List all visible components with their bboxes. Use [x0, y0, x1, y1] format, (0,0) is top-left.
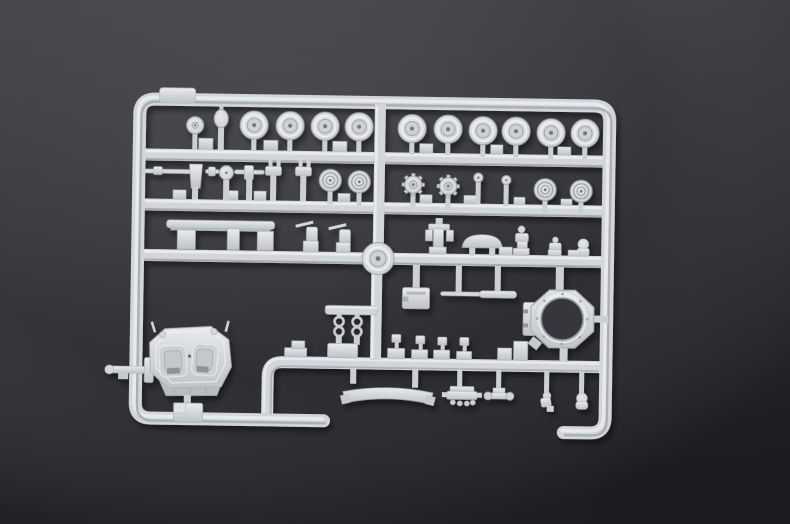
sprue-photo [0, 0, 790, 524]
photo-canvas [0, 0, 790, 524]
turret-hatch-left [159, 345, 188, 377]
stowage-box-part [173, 403, 202, 422]
turret-hatch-right [191, 343, 219, 376]
corner-tab [159, 88, 195, 104]
center-spine-runner [378, 104, 380, 250]
hub-disc-part [362, 242, 394, 274]
